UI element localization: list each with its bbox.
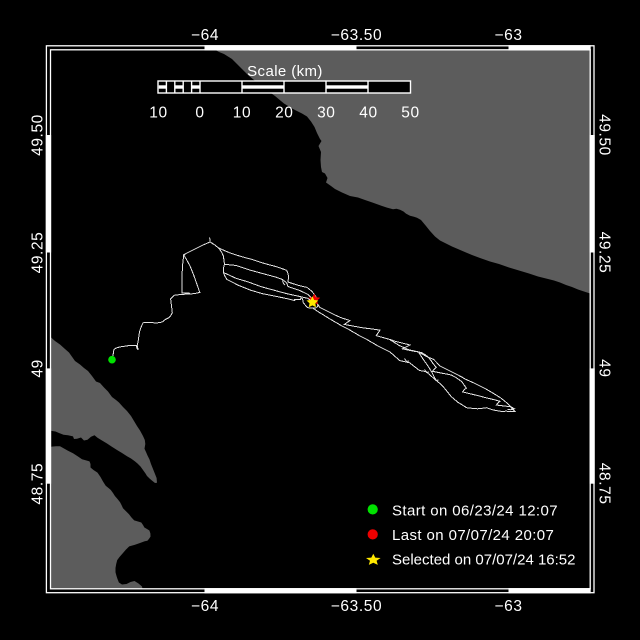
svg-text:10: 10 xyxy=(233,105,251,122)
svg-text:−63.50: −63.50 xyxy=(331,27,382,44)
svg-text:48.75: 48.75 xyxy=(30,463,47,505)
svg-text:−63.50: −63.50 xyxy=(331,598,382,615)
svg-text:49: 49 xyxy=(30,359,47,377)
svg-text:Last on 07/07/24 20:07: Last on 07/07/24 20:07 xyxy=(392,527,554,544)
svg-text:Start on 06/23/24 12:07: Start on 06/23/24 12:07 xyxy=(392,502,558,519)
svg-text:10: 10 xyxy=(149,105,167,122)
svg-text:30: 30 xyxy=(317,105,335,122)
svg-text:−63: −63 xyxy=(494,27,522,44)
svg-text:48.75: 48.75 xyxy=(596,463,613,505)
svg-text:−64: −64 xyxy=(191,27,219,44)
svg-text:49.25: 49.25 xyxy=(596,232,613,274)
svg-text:0: 0 xyxy=(195,105,204,122)
svg-text:49.50: 49.50 xyxy=(596,114,613,156)
svg-text:20: 20 xyxy=(275,105,293,122)
svg-text:−64: −64 xyxy=(191,598,219,615)
svg-text:−63: −63 xyxy=(494,598,522,615)
svg-text:Scale (km): Scale (km) xyxy=(247,63,323,80)
svg-text:49: 49 xyxy=(596,359,613,377)
svg-text:49.50: 49.50 xyxy=(30,114,47,156)
svg-text:Selected on 07/07/24 16:52: Selected on 07/07/24 16:52 xyxy=(392,551,576,568)
svg-text:50: 50 xyxy=(401,105,419,122)
svg-text:49.25: 49.25 xyxy=(30,232,47,274)
svg-text:40: 40 xyxy=(359,105,377,122)
